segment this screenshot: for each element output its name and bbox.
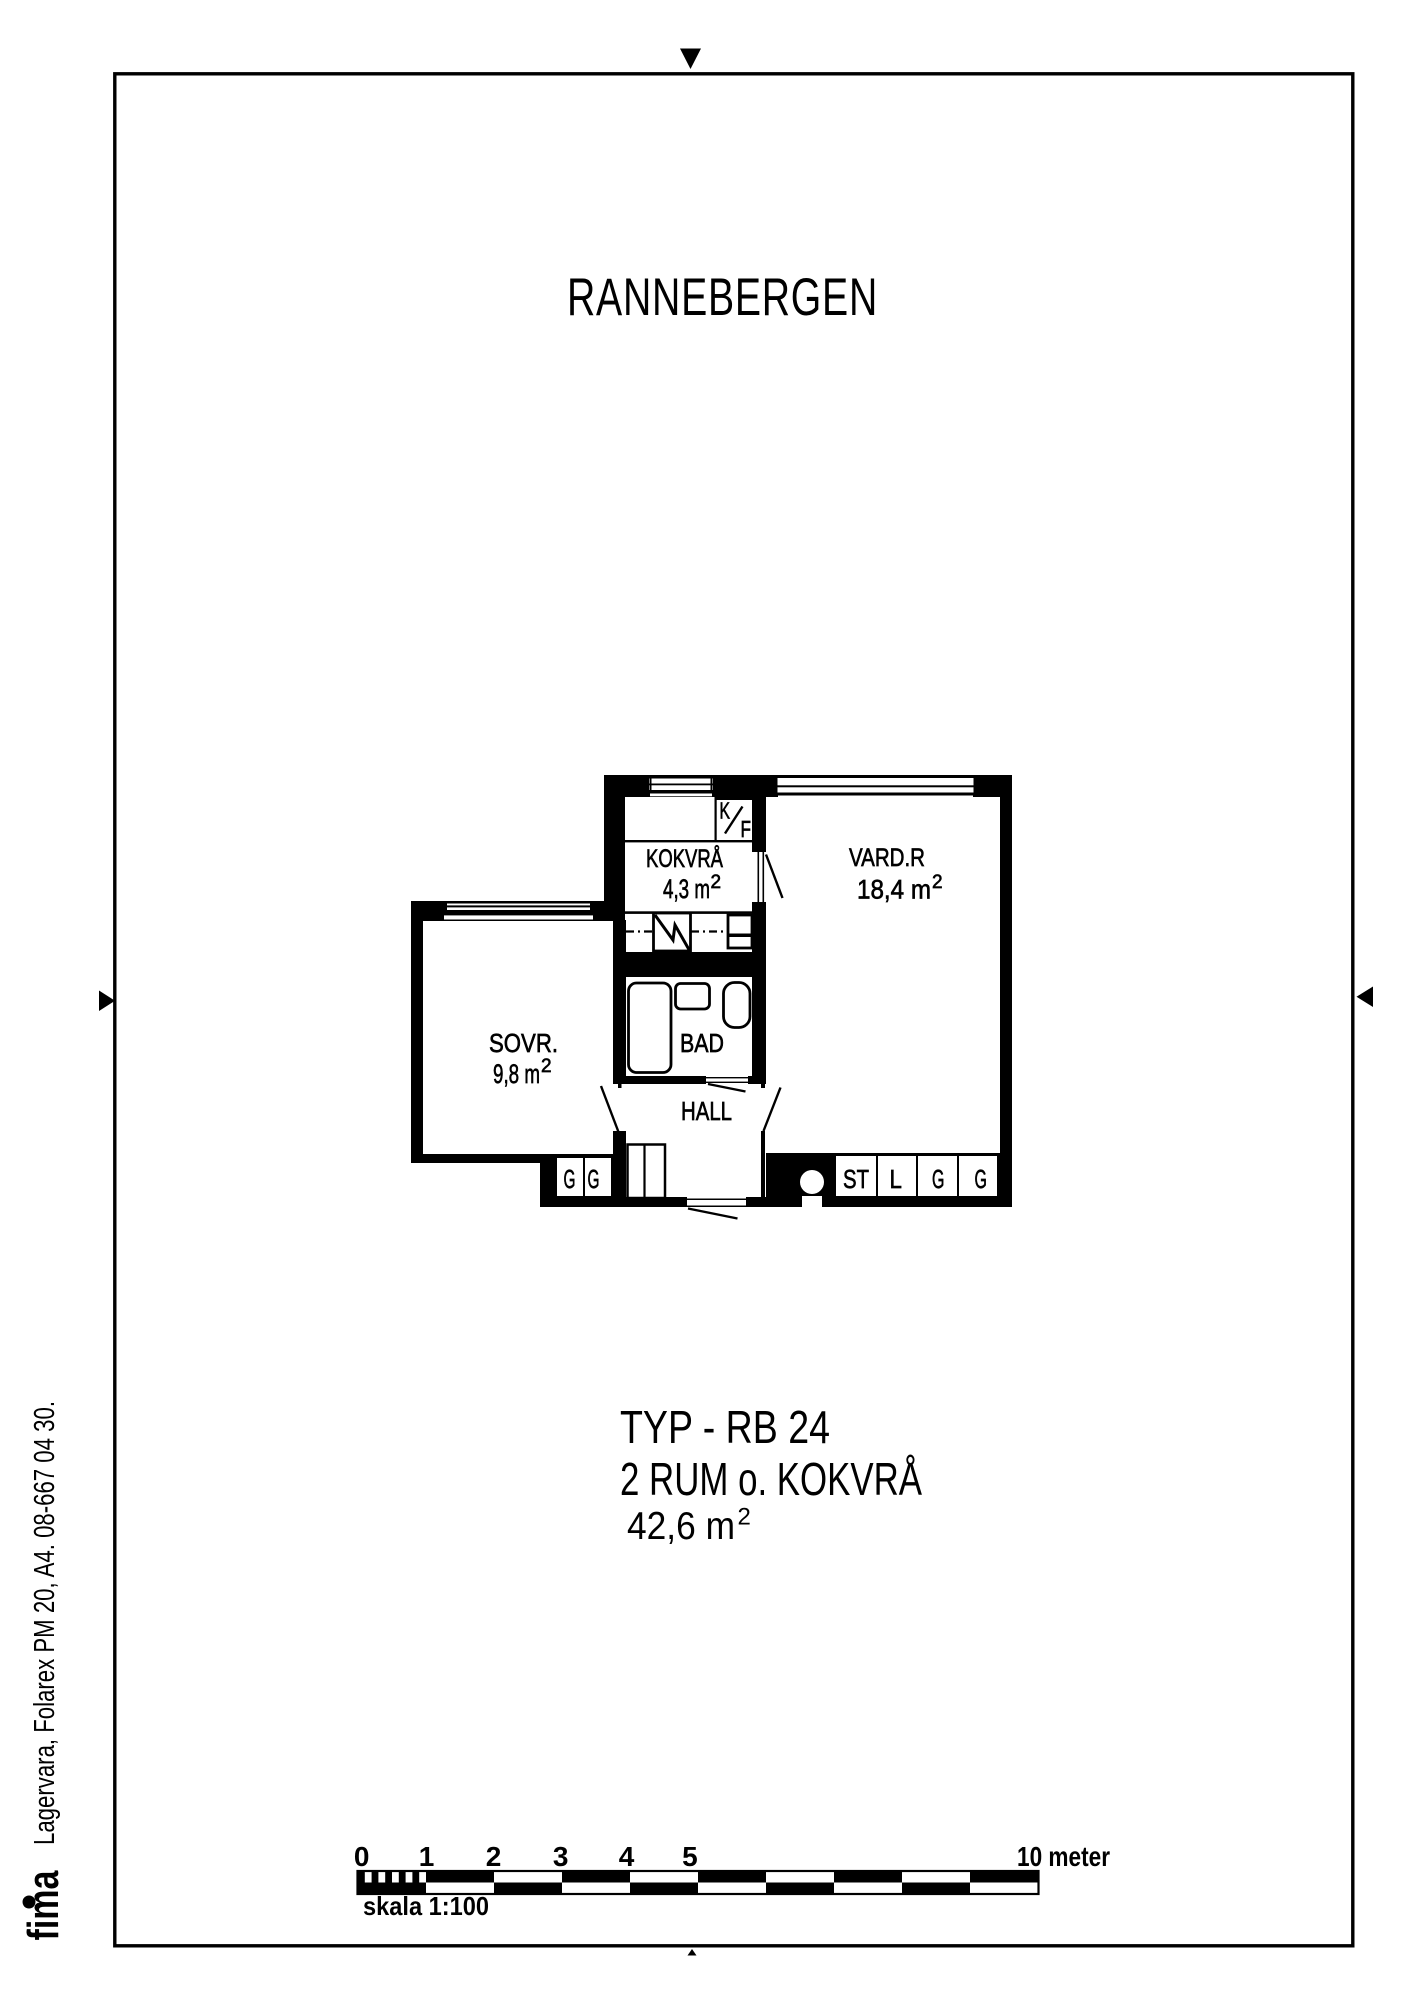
svg-text:4,3 m: 4,3 m [663, 874, 710, 904]
svg-text:G: G [564, 1164, 576, 1194]
svg-text:BAD: BAD [680, 1028, 724, 1058]
svg-text:ST: ST [843, 1164, 869, 1194]
svg-text:10 meter: 10 meter [1017, 1841, 1110, 1872]
svg-text:SOVR.: SOVR. [489, 1028, 558, 1058]
svg-text:Lagervara, Folarex PM 20, A4.: Lagervara, Folarex PM 20, A4. 08-667 04 … [29, 1401, 61, 1845]
svg-text:2: 2 [932, 872, 943, 893]
svg-text:K: K [720, 798, 731, 824]
svg-text:KOKVRÅ: KOKVRÅ [646, 843, 723, 873]
svg-text:3: 3 [553, 1841, 569, 1872]
svg-text:G: G [932, 1164, 944, 1194]
svg-text:2: 2 [486, 1841, 502, 1872]
svg-text:0: 0 [354, 1841, 370, 1872]
svg-text:1: 1 [419, 1841, 435, 1872]
svg-text:G: G [588, 1164, 600, 1194]
svg-text:2: 2 [711, 872, 722, 893]
svg-text:42,6 m: 42,6 m [627, 1505, 735, 1548]
svg-text:VARD.R: VARD.R [849, 844, 925, 872]
svg-text:F: F [741, 816, 752, 842]
svg-text:RANNEBERGEN: RANNEBERGEN [567, 268, 878, 327]
svg-text:2: 2 [541, 1056, 552, 1077]
svg-text:18,4 m: 18,4 m [857, 875, 931, 905]
svg-text:G: G [975, 1164, 987, 1194]
svg-text:4: 4 [619, 1841, 635, 1872]
svg-text:2 RUM o. KOKVRÅ: 2 RUM o. KOKVRÅ [620, 1453, 922, 1505]
svg-text:L: L [890, 1164, 902, 1194]
svg-text:9,8 m: 9,8 m [493, 1059, 540, 1089]
svg-text:skala 1:100: skala 1:100 [363, 1891, 489, 1921]
svg-text:5: 5 [682, 1841, 698, 1872]
svg-text:2: 2 [738, 1504, 751, 1531]
svg-text:HALL: HALL [681, 1096, 732, 1126]
svg-text:TYP - RB 24: TYP - RB 24 [620, 1401, 830, 1453]
